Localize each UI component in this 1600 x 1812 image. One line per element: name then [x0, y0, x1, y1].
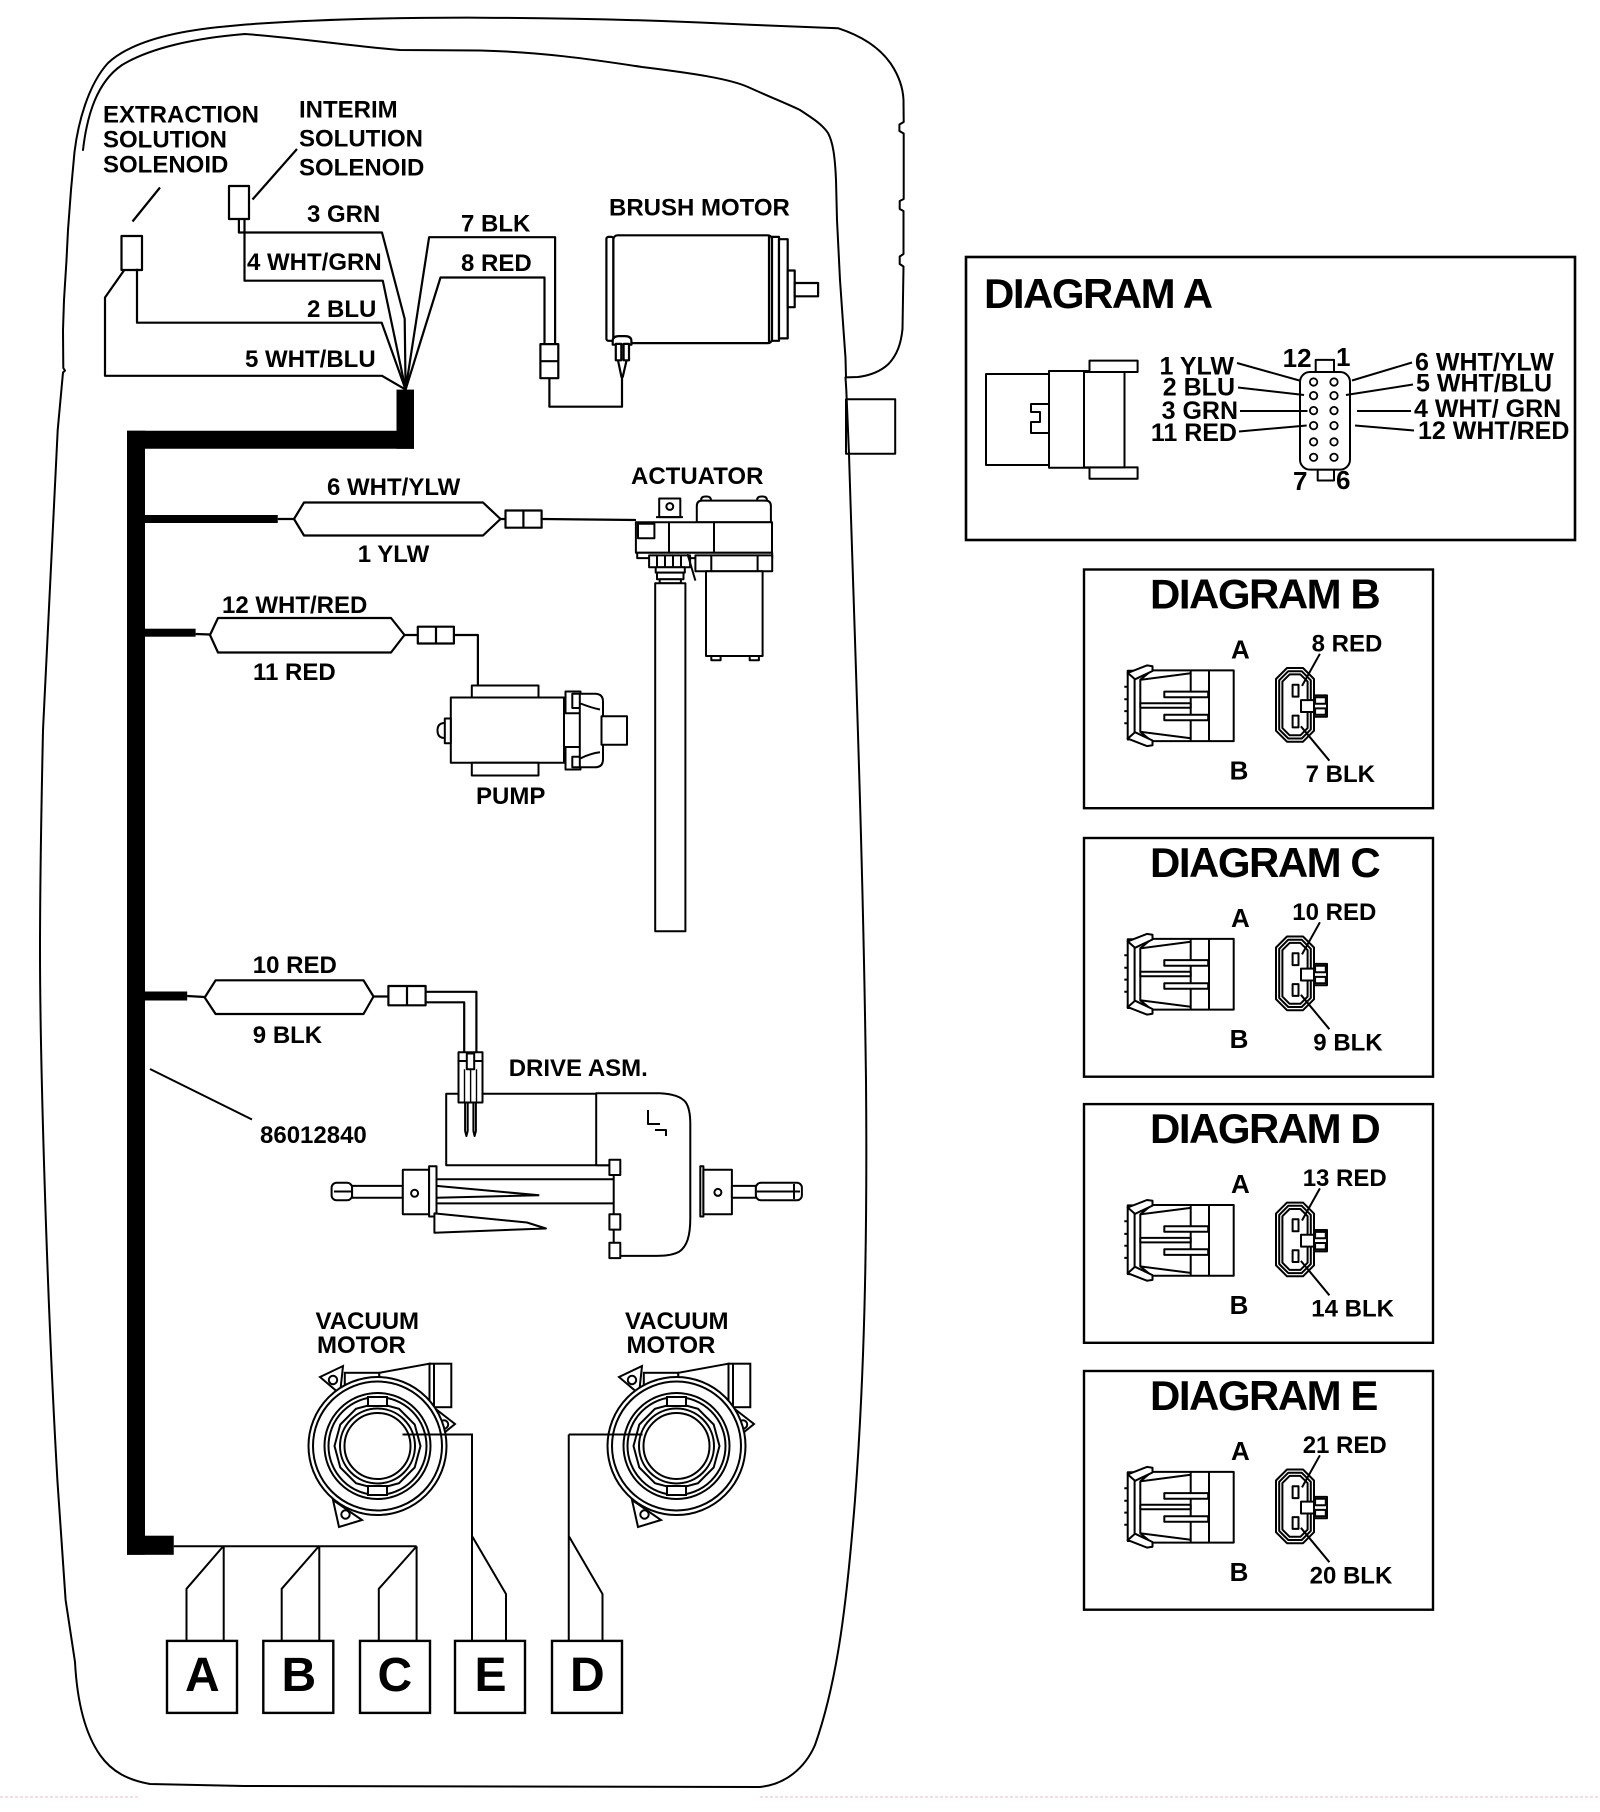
svg-text:5 WHT/BLU: 5 WHT/BLU [1416, 370, 1552, 398]
svg-text:SOLENOID: SOLENOID [103, 152, 228, 179]
svg-text:DIAGRAM A: DIAGRAM A [984, 270, 1213, 317]
svg-text:12 WHT/RED: 12 WHT/RED [1418, 417, 1569, 445]
svg-text:INTERIM: INTERIM [299, 97, 398, 124]
svg-text:7: 7 [1293, 466, 1307, 496]
svg-text:EXTRACTION: EXTRACTION [103, 102, 259, 129]
svg-text:86012840: 86012840 [260, 1122, 367, 1149]
svg-text:10 RED: 10 RED [253, 952, 337, 979]
svg-text:ACTUATOR: ACTUATOR [631, 463, 763, 490]
svg-text:7 BLK: 7 BLK [1306, 761, 1376, 788]
svg-text:SOLUTION: SOLUTION [299, 126, 423, 153]
svg-text:11 RED: 11 RED [253, 659, 336, 686]
svg-text:MOTOR: MOTOR [317, 1332, 406, 1359]
svg-text:7 BLK: 7 BLK [461, 211, 531, 238]
svg-text:DRIVE ASM.: DRIVE ASM. [509, 1055, 648, 1082]
svg-text:11 RED: 11 RED [1151, 419, 1237, 447]
svg-text:DIAGRAM E: DIAGRAM E [1150, 1372, 1377, 1419]
svg-text:13 RED: 13 RED [1303, 1165, 1387, 1192]
svg-text:VACUUM: VACUUM [316, 1308, 420, 1335]
svg-text:C: C [378, 1649, 413, 1702]
svg-text:8 RED: 8 RED [1312, 631, 1383, 658]
svg-text:DIAGRAM B: DIAGRAM B [1150, 571, 1379, 618]
svg-text:4 WHT/GRN: 4 WHT/GRN [247, 249, 382, 276]
svg-text:1: 1 [1336, 342, 1350, 372]
svg-text:A: A [185, 1649, 220, 1702]
svg-text:BRUSH MOTOR: BRUSH MOTOR [609, 195, 790, 222]
svg-text:D: D [570, 1649, 605, 1702]
svg-text:20 BLK: 20 BLK [1310, 1563, 1393, 1590]
svg-text:MOTOR: MOTOR [627, 1332, 716, 1359]
svg-text:DIAGRAM D: DIAGRAM D [1150, 1105, 1379, 1152]
svg-text:DIAGRAM C: DIAGRAM C [1150, 839, 1380, 886]
svg-text:A: A [1231, 635, 1250, 665]
svg-text:9 BLK: 9 BLK [253, 1022, 323, 1049]
svg-text:SOLENOID: SOLENOID [299, 155, 424, 182]
svg-text:SOLUTION: SOLUTION [103, 127, 227, 154]
svg-text:21 RED: 21 RED [1303, 1432, 1387, 1459]
svg-text:2 BLU: 2 BLU [307, 296, 376, 323]
svg-text:VACUUM: VACUUM [625, 1308, 729, 1335]
svg-text:PUMP: PUMP [476, 783, 545, 810]
svg-text:8 RED: 8 RED [461, 250, 532, 277]
svg-text:E: E [475, 1649, 507, 1702]
svg-text:12 WHT/RED: 12 WHT/RED [222, 592, 367, 619]
svg-text:10 RED: 10 RED [1292, 899, 1376, 926]
svg-text:5 WHT/BLU: 5 WHT/BLU [245, 346, 376, 373]
svg-text:B: B [282, 1649, 317, 1702]
svg-text:3 GRN: 3 GRN [307, 201, 380, 228]
svg-text:6 WHT/YLW: 6 WHT/YLW [327, 474, 461, 501]
svg-text:12: 12 [1283, 343, 1312, 373]
svg-text:14 BLK: 14 BLK [1311, 1296, 1394, 1323]
svg-text:9 BLK: 9 BLK [1313, 1030, 1383, 1057]
svg-text:1 YLW: 1 YLW [358, 541, 430, 568]
svg-text:B: B [1230, 756, 1249, 786]
svg-text:6: 6 [1336, 465, 1350, 495]
